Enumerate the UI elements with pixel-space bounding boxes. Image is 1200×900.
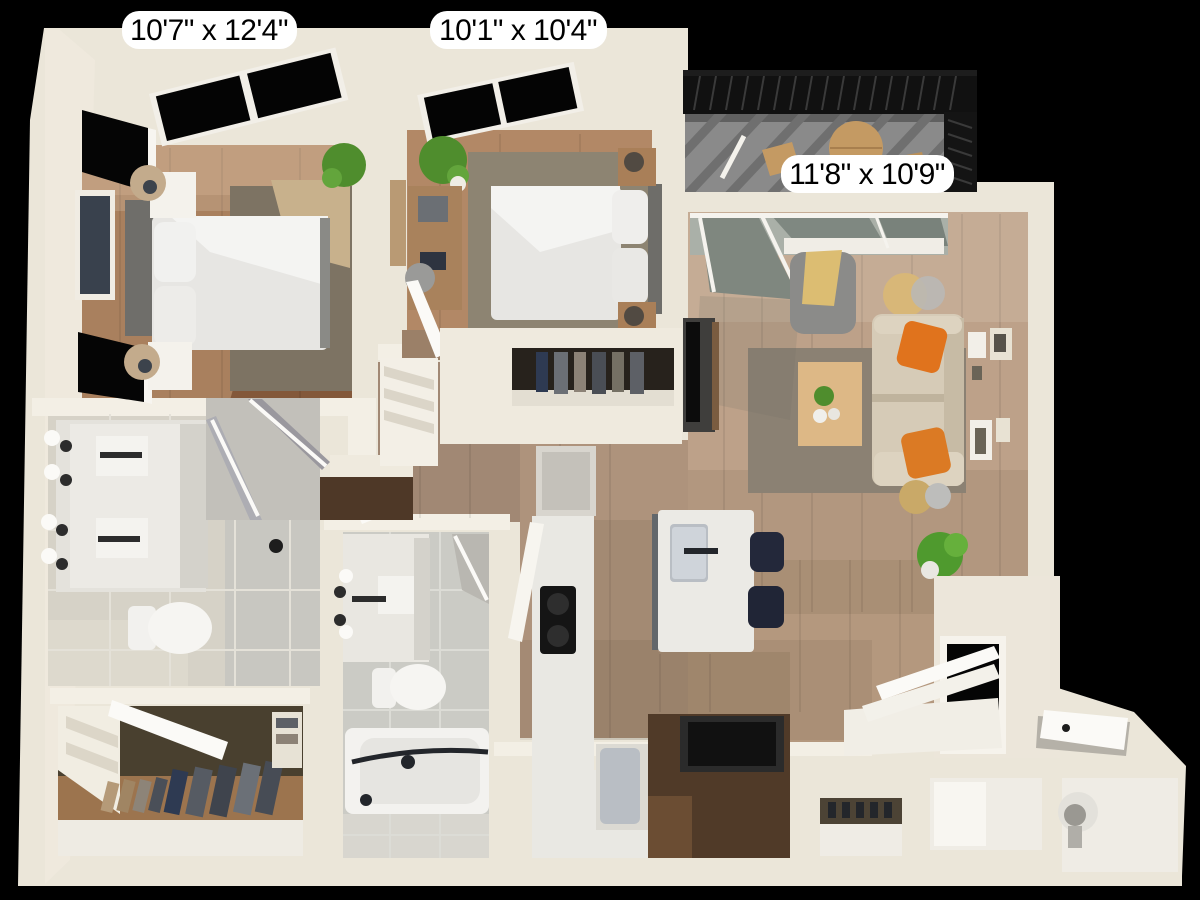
svg-text:11'8" x 10'9": 11'8" x 10'9" bbox=[789, 158, 945, 191]
svg-text:10'7" x 12'4": 10'7" x 12'4" bbox=[130, 14, 288, 47]
svg-text:10'1" x 10'4": 10'1" x 10'4" bbox=[439, 14, 597, 47]
